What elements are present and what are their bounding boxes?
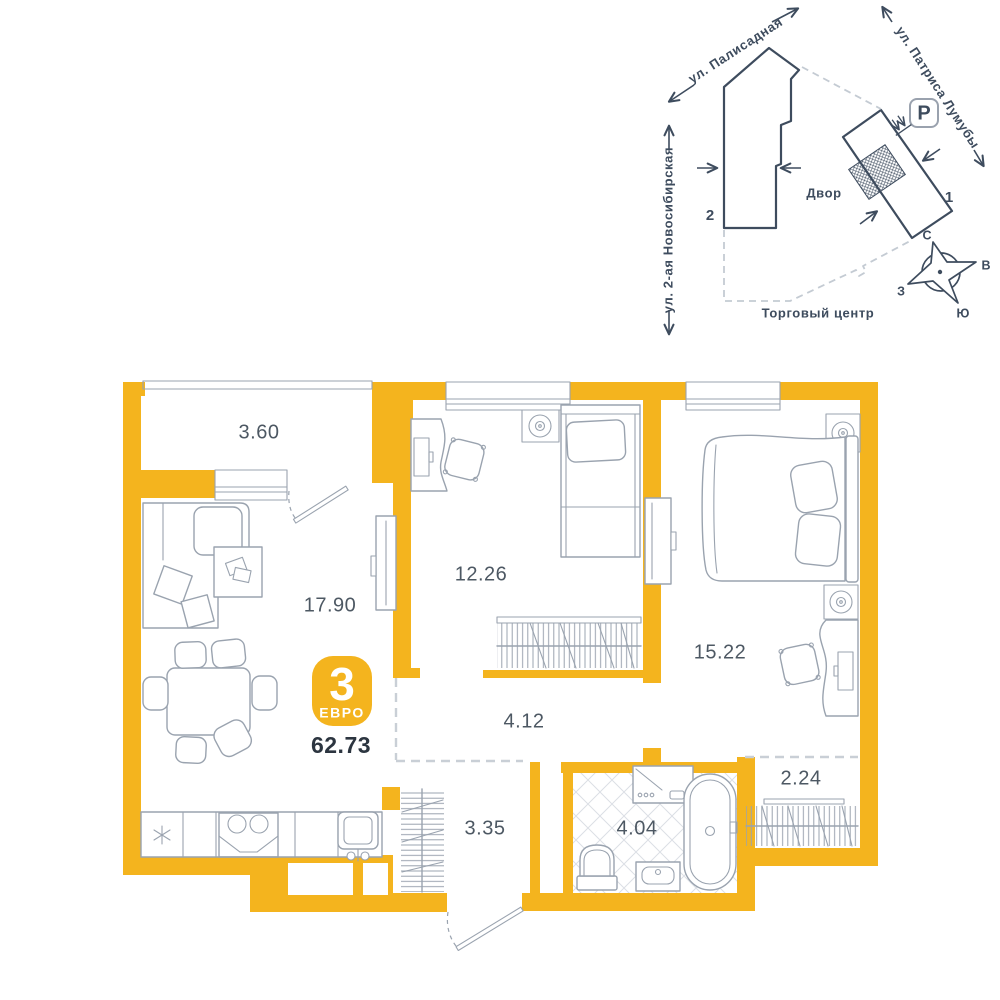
wardrobe-corridor xyxy=(401,789,444,892)
label-bedroom1: 12.26 xyxy=(455,563,508,585)
site-building-2-outline xyxy=(724,48,799,228)
badge-type-label: ЕВРО xyxy=(319,705,365,721)
street-label-novosibirskaya: ул. 2-ая Новосибирская xyxy=(660,147,675,313)
wall-bottom-wardrobe224 xyxy=(745,848,878,866)
arrow-patrisa-se xyxy=(974,150,983,165)
wardrobe-224 xyxy=(746,799,858,846)
floorplan-canvas: ул. Палисадная ул. Патриса Лумубы ул. 2-… xyxy=(0,0,1000,1000)
label-wardrobe224: 2.24 xyxy=(781,767,822,789)
compass-south: Ю xyxy=(957,306,970,320)
double-bed-icon xyxy=(702,435,858,582)
entrance-door xyxy=(447,907,523,950)
arrow-entrance-b1-right xyxy=(924,149,940,160)
arrow-patrisa-nw xyxy=(883,8,892,22)
wall-top-b xyxy=(570,382,686,400)
ceiling-lamp-bedroom1-icon xyxy=(522,410,559,442)
wall-left xyxy=(123,382,141,875)
wall-bath-left-inner xyxy=(563,762,573,893)
wall-top-a xyxy=(409,382,446,400)
desk-bedroom2-icon xyxy=(820,620,858,716)
wall-kitchen-bottom xyxy=(123,857,270,875)
badge-rooms-count: 3 xyxy=(329,658,355,710)
wall-bath-bottom xyxy=(522,893,755,911)
compass-north: С xyxy=(922,228,931,242)
desk-chair-bedroom2-icon xyxy=(779,643,821,686)
compass-east: В xyxy=(981,258,990,272)
bedroom1-furniture xyxy=(411,405,676,584)
label-balcony: 3.60 xyxy=(239,421,280,443)
desk-bedroom1-icon xyxy=(411,419,447,491)
wall-living-bedroom1-foot xyxy=(393,668,420,678)
building-1-number: 1 xyxy=(945,189,953,206)
balcony-glazing xyxy=(143,381,372,389)
wall-bath-left-outer xyxy=(530,762,540,893)
wall-balcony-bottom xyxy=(123,470,215,498)
wall-corridor-post xyxy=(382,787,400,810)
plot-boundary-dash-bottom xyxy=(724,230,912,301)
wardrobe-bedroom1 xyxy=(497,617,641,668)
tv-unit-bedroom2-icon xyxy=(645,498,676,584)
balcony-door xyxy=(289,486,348,523)
toilet-icon xyxy=(577,845,617,890)
floor-plan: 3.60 17.90 12.26 15.22 4.12 2.24 3.35 4.… xyxy=(123,381,878,950)
window-bedroom2 xyxy=(686,382,780,410)
entrance-door-leaf xyxy=(456,907,523,950)
bathtub-icon xyxy=(684,774,737,890)
tv-unit-living-icon xyxy=(371,516,396,610)
label-hallway: 4.12 xyxy=(504,710,545,732)
label-corridor: 3.35 xyxy=(465,817,506,839)
street-label-patrisa-lumumby: ул. Патриса Лумубы xyxy=(893,24,983,152)
arrow-entrance-b1-bottom xyxy=(860,212,876,224)
yard-label: Двор xyxy=(806,185,841,200)
compass-west: З xyxy=(897,284,905,298)
arrow-palisadnaya-sw xyxy=(670,85,694,101)
label-bathroom: 4.04 xyxy=(617,817,658,839)
window-balcony-living xyxy=(215,470,287,500)
bedroom2-furniture xyxy=(702,414,860,716)
nightstand-lamp-bottom-icon xyxy=(824,585,858,619)
opening-bottom-window-1 xyxy=(288,863,353,895)
mall-label: Торговый центр xyxy=(762,305,875,320)
wall-right xyxy=(860,382,878,866)
parking-letter: P xyxy=(917,102,930,124)
wall-bedroom1-bottom xyxy=(483,670,643,678)
label-living: 17.90 xyxy=(304,594,357,616)
single-bed-icon xyxy=(561,405,640,557)
label-bedroom2: 15.22 xyxy=(694,641,747,663)
sink-icon xyxy=(636,862,680,891)
building-2-number: 2 xyxy=(706,207,714,224)
apartment-badge: 3 ЕВРО 62.73 xyxy=(311,656,372,758)
floorplan-page: ул. Палисадная ул. Патриса Лумубы ул. 2-… xyxy=(0,0,1000,1000)
opening-bottom-window-2 xyxy=(363,863,388,895)
zone-dashes xyxy=(396,678,858,761)
site-plan: ул. Палисадная ул. Патриса Лумубы ул. 2-… xyxy=(660,8,990,333)
wall-top-left-corner xyxy=(123,382,145,396)
compass-rose: С В Ю З xyxy=(897,228,990,320)
window-bedroom1 xyxy=(446,382,570,410)
wall-bedroom2-left-stub xyxy=(643,748,661,762)
coffee-table-icon xyxy=(214,547,262,597)
kitchen-counter xyxy=(141,812,382,861)
badge-total-area: 62.73 xyxy=(311,732,371,758)
parking-icon: P xyxy=(910,99,938,127)
desk-chair-bedroom1-icon xyxy=(443,437,486,481)
plot-boundary-dash-top xyxy=(802,67,881,109)
